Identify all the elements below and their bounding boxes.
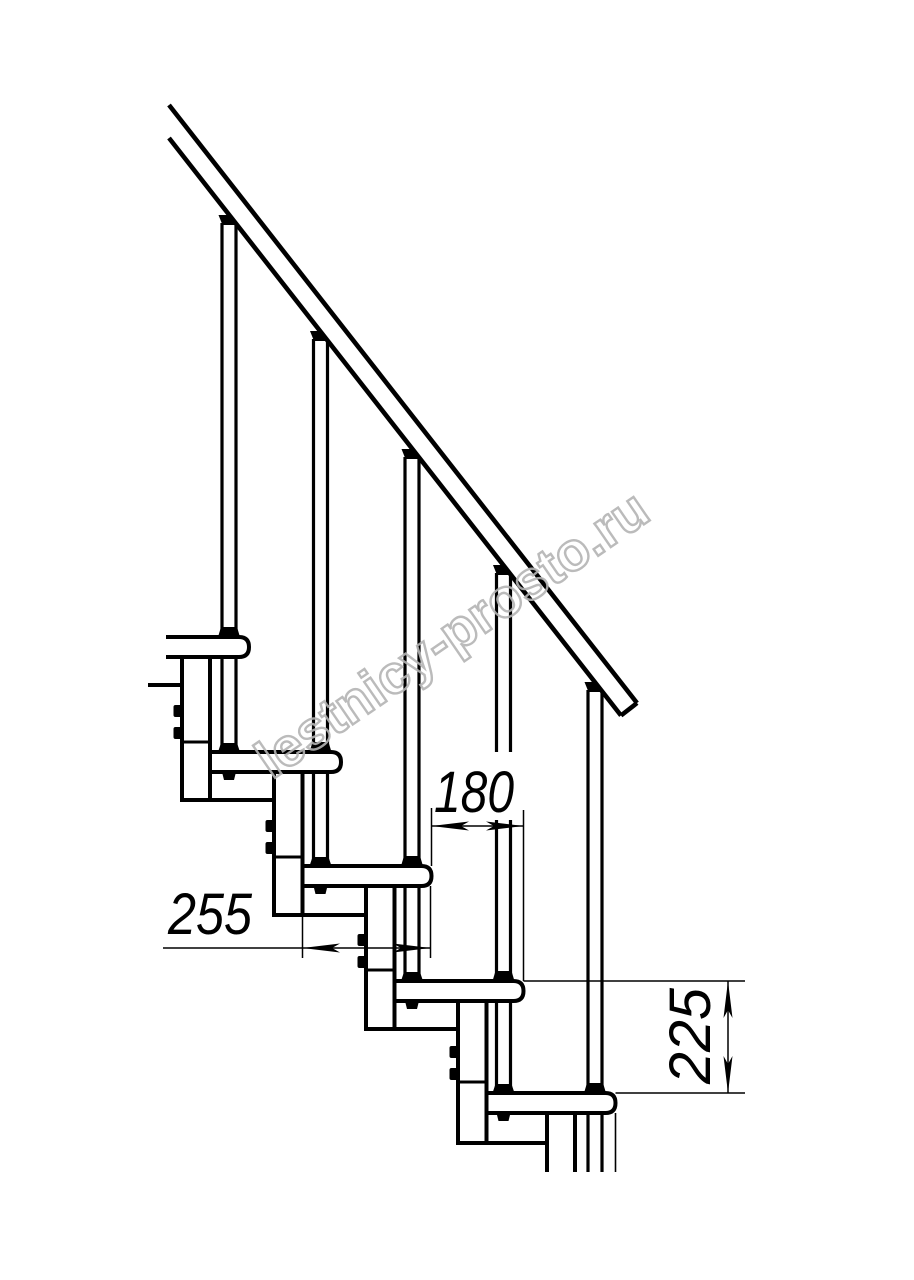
bolt-lug (358, 956, 367, 968)
spine-beam-4 (487, 1113, 548, 1143)
bolt-lug (358, 934, 367, 946)
spine-beam-1 (210, 772, 274, 800)
spine-column-3 (366, 886, 395, 1029)
dimension-rise: 225 (524, 981, 746, 1093)
dimension-label-tread-depth: 255 (167, 882, 253, 947)
through-bolt (497, 1113, 511, 1121)
baluster-foot (493, 1084, 515, 1093)
bolt-lug (266, 842, 275, 854)
watermark-text: lestnicy-prosto.ru (245, 479, 660, 790)
tread-5 (487, 1093, 616, 1113)
baluster-2 (310, 331, 331, 866)
spine-beam-2 (303, 886, 367, 915)
bolt-lug (450, 1068, 459, 1080)
baluster-foot (218, 743, 240, 752)
baluster-collar (401, 856, 423, 866)
bolt-lug (174, 705, 183, 717)
baluster-collar (493, 971, 515, 981)
tread-4 (395, 981, 524, 1001)
bolt-lug (174, 727, 183, 739)
tread-3 (303, 866, 432, 886)
dimension-label-rise: 225 (658, 987, 723, 1085)
baluster-3 (402, 449, 423, 981)
dimension-label-going: 180 (434, 760, 514, 825)
baluster-foot (310, 857, 332, 866)
tread-1 (166, 637, 249, 657)
spine-beam-3 (395, 1001, 459, 1029)
bolt-lug (450, 1046, 459, 1058)
spine-column-2 (274, 772, 303, 915)
baluster-collar (584, 1083, 606, 1093)
baluster-foot (401, 972, 423, 981)
spine-column-1 (182, 657, 210, 800)
spine-column-4 (458, 1001, 487, 1143)
through-bolt (314, 886, 328, 894)
handrail (169, 105, 637, 716)
baluster-1 (219, 215, 240, 752)
through-bolt (405, 1001, 419, 1009)
staircase-elevation-drawing: 180 255 225 lestnicy-prosto.ru (0, 0, 914, 1280)
baluster-collar (218, 627, 240, 637)
through-bolt (222, 772, 236, 780)
bolt-lug (266, 820, 275, 832)
technical-drawing-canvas: 180 255 225 lestnicy-prosto.ru (0, 0, 914, 1280)
